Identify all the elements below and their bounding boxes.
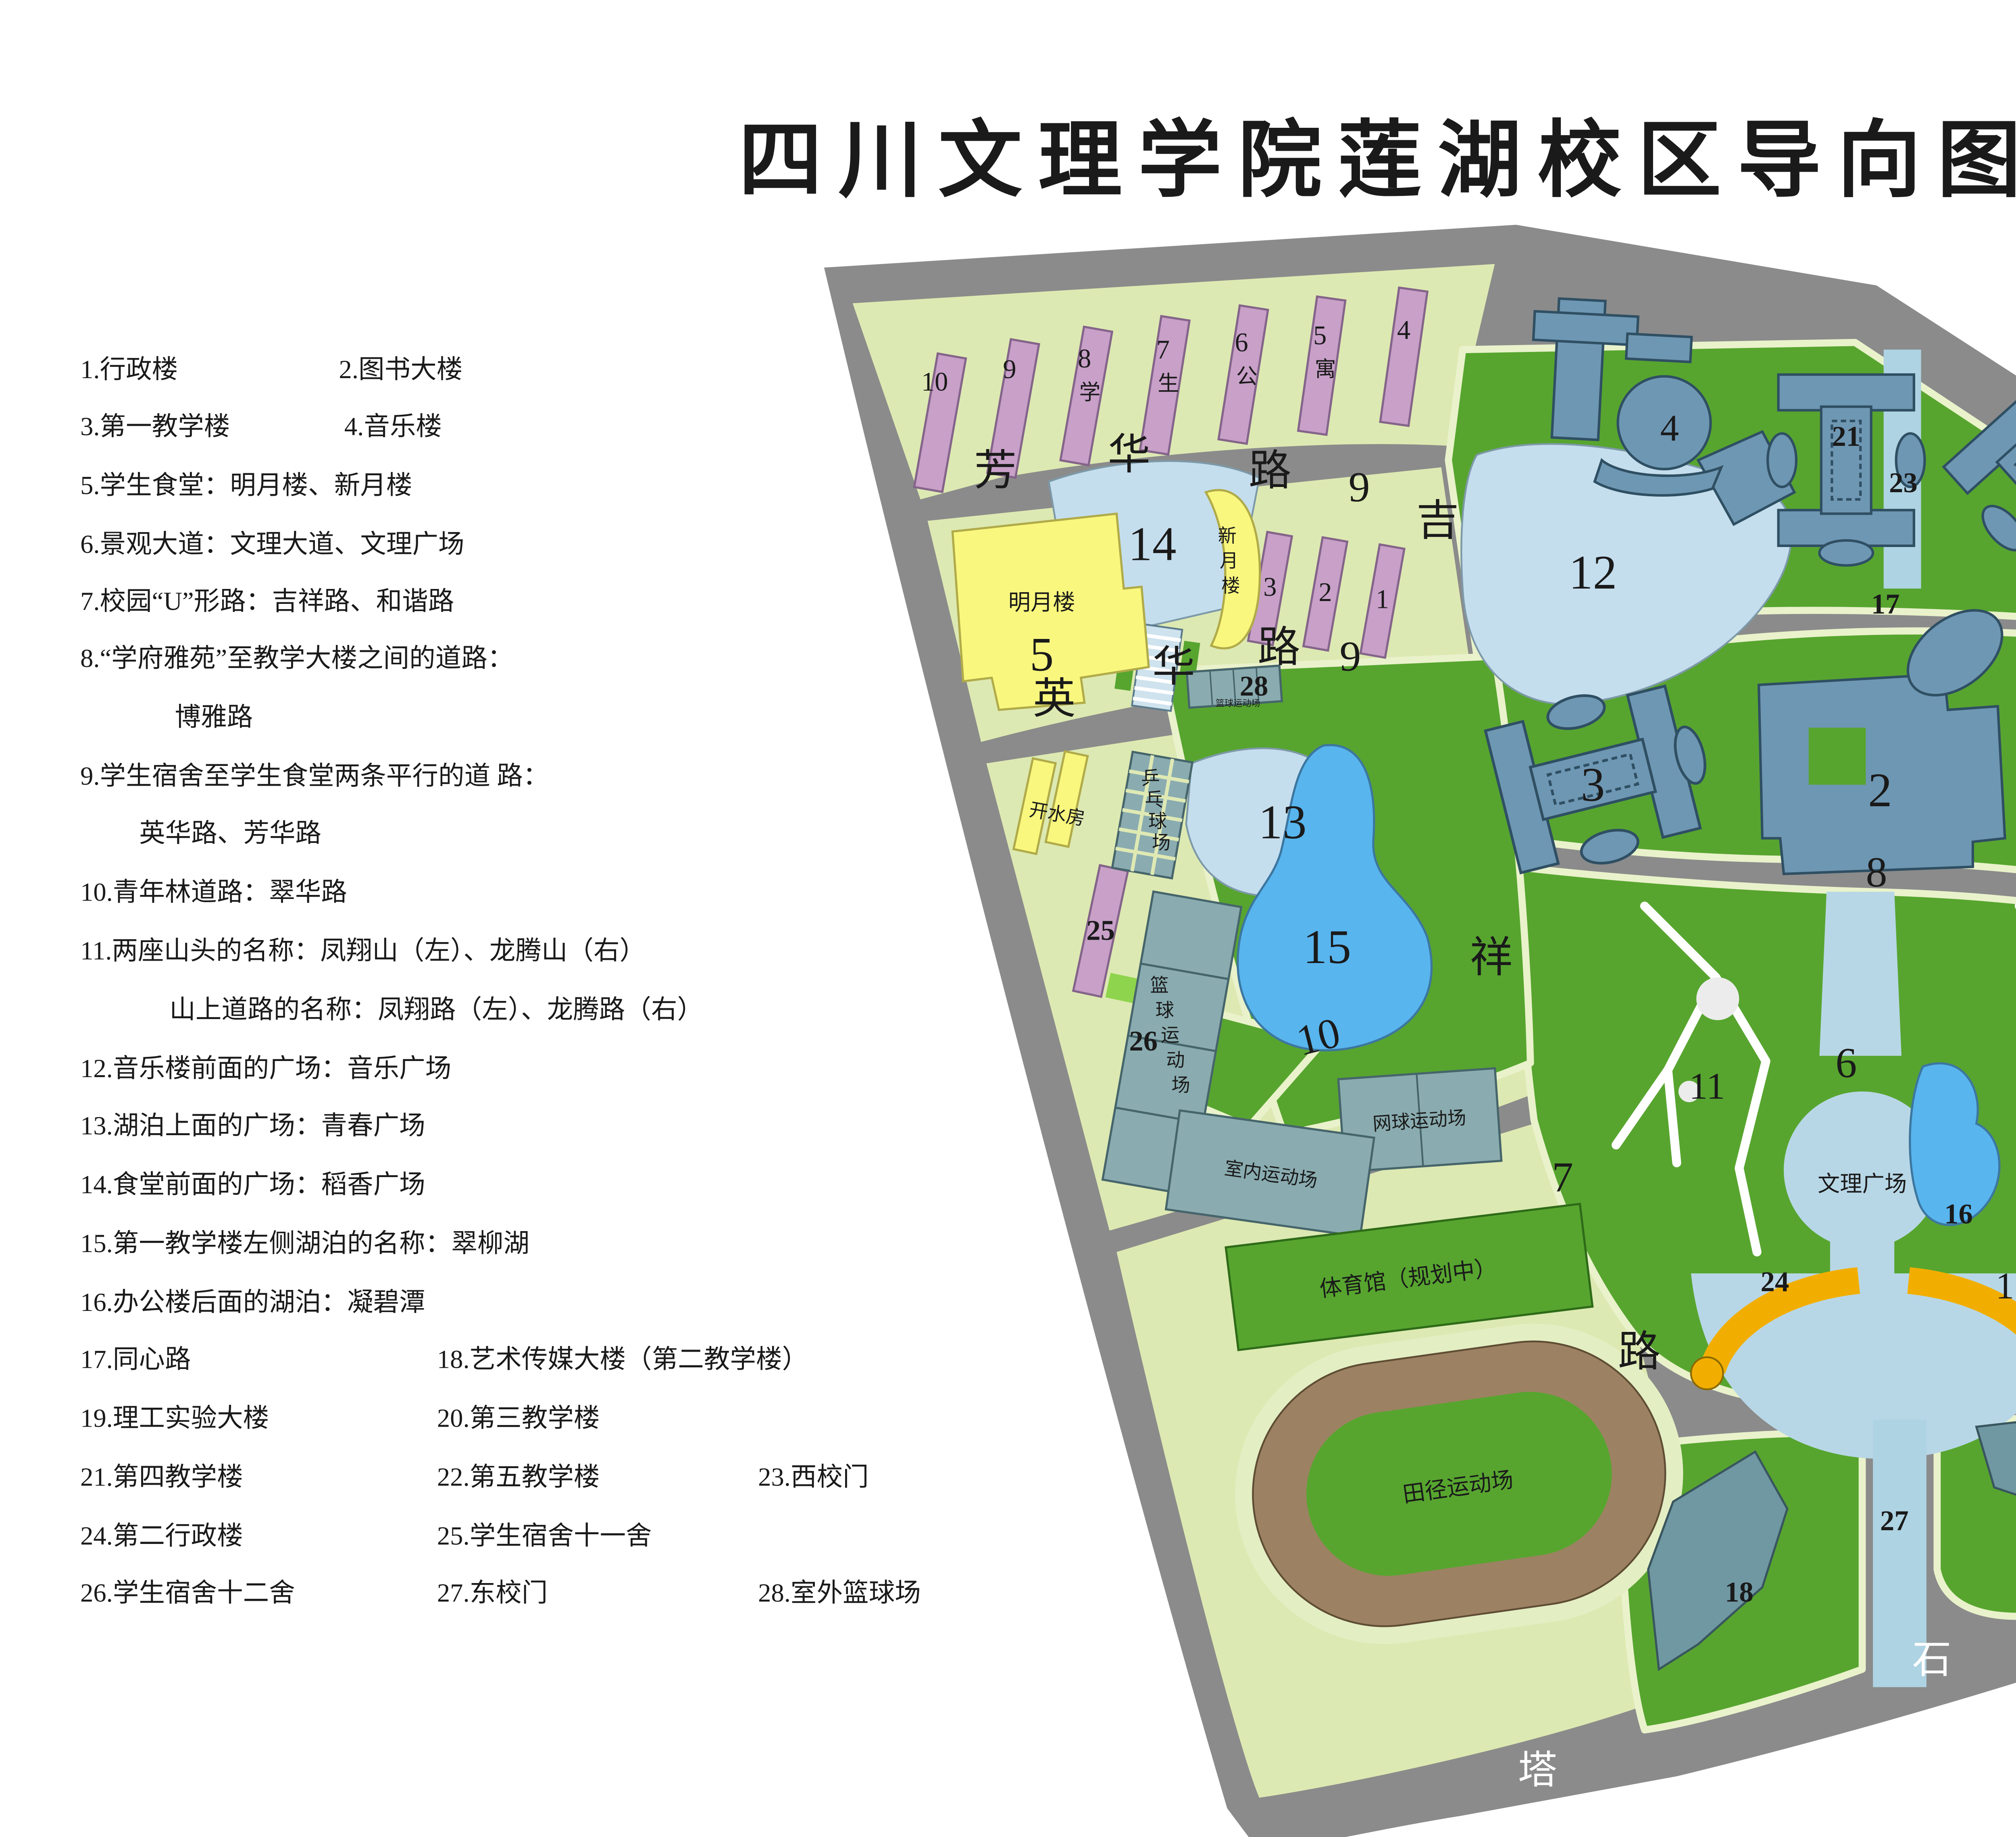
campus-map: 四川文理学院莲湖校区导向图 1.行政楼 2.图书大楼 3.第一教学楼 4.音乐楼…	[0, 0, 2016, 1837]
dorm-char-sheng: 生	[1158, 372, 1179, 395]
building-3-number: 3	[1581, 758, 1605, 811]
dorm-3-label: 3	[1263, 572, 1277, 602]
list-item: 24.第二行政楼	[80, 1521, 243, 1550]
list-item: 17.同心路	[80, 1344, 191, 1373]
lq-char-3: 运	[1161, 1026, 1179, 1046]
lq-char-5: 场	[1171, 1076, 1190, 1096]
plaza-13-number: 13	[1258, 795, 1306, 849]
list-item: 12.音乐楼前面的广场：音乐广场	[80, 1054, 451, 1083]
admin-1-number: 1	[1995, 1265, 2014, 1307]
library-courtyard	[1809, 728, 1866, 785]
list-item: 8.“学府雅苑”至教学大楼之间的道路：	[80, 644, 513, 673]
road-label-hua2: 华	[1152, 643, 1195, 691]
dorm-char-xue: 学	[1079, 381, 1100, 404]
dorm-26-label: 26	[1129, 1026, 1158, 1057]
lq-char-4: 动	[1166, 1051, 1185, 1071]
plaza-14-number: 14	[1128, 517, 1176, 570]
building-4-number: 4	[1660, 408, 1679, 449]
pond-16-number: 16	[1944, 1198, 1973, 1230]
dorm-5-label: 5	[1313, 321, 1327, 350]
road-label-lu: 路	[1249, 447, 1291, 494]
list-item: 博雅路	[175, 703, 253, 732]
list-item: 20.第三教学楼	[437, 1403, 600, 1432]
xinyue-char-3: 楼	[1221, 576, 1240, 597]
dorm-10-label: 10	[921, 367, 948, 397]
court-28-label: 28	[1240, 671, 1268, 702]
road-label-9b: 9	[1339, 632, 1361, 680]
list-item: 2.图书大楼	[339, 355, 463, 384]
building-2-number: 2	[1868, 764, 1892, 817]
road-label-xiang: 祥	[1470, 934, 1512, 981]
court-28-sub: 篮球运动场	[1216, 698, 1260, 708]
list-item: 11.两座山头的名称：凤翔山（左）、龙腾山（右）	[80, 936, 646, 965]
list-item: 27.东校门	[437, 1578, 548, 1607]
pp-char-1: 乒	[1141, 769, 1160, 789]
road-label-fang: 芳	[974, 447, 1016, 494]
pp-char-2: 乓	[1145, 790, 1163, 811]
list-item: 26.学生宿舍十二舍	[80, 1578, 295, 1607]
xinyue-char-2: 月	[1220, 551, 1238, 572]
avenue-label-6: 6	[1835, 1039, 1857, 1086]
dorm-char-gong: 公	[1236, 365, 1258, 388]
mingyue-label: 明月楼	[1008, 590, 1075, 615]
list-item: 28.室外篮球场	[758, 1578, 921, 1607]
road-label-7: 7	[1552, 1153, 1573, 1200]
list-item: 7.校园“U”形路：吉祥路、和谐路	[80, 587, 454, 616]
road-label-ying: 英	[1033, 675, 1075, 723]
road-label-lu2: 路	[1258, 623, 1300, 671]
hill-11-left-label: 11	[1689, 1065, 1725, 1107]
gate-27-number: 27	[1880, 1505, 1909, 1537]
list-item: 25.学生宿舍十一舍	[437, 1521, 652, 1550]
road-label-shi: 石	[1912, 1638, 1951, 1682]
wenli-square-label: 文理广场	[1818, 1171, 1907, 1196]
dorm-6-label: 6	[1235, 328, 1248, 358]
dorm-4-label: 4	[1397, 316, 1410, 345]
building-5-number: 5	[1030, 628, 1054, 681]
list-item: 16.办公楼后面的湖泊：凝碧潭	[80, 1288, 425, 1317]
xinyue-char-1: 新	[1218, 526, 1236, 547]
gate-23-number: 23	[1889, 467, 1918, 499]
list-item: 23.西校门	[758, 1462, 868, 1491]
lake-15-number: 15	[1303, 920, 1351, 974]
plaza-12-number: 12	[1569, 546, 1617, 599]
road-label-lu3: 路	[1618, 1328, 1661, 1375]
road-label-hua: 华	[1108, 431, 1150, 478]
list-item: 9.学生宿舍至学生食堂两条平行的道 路：	[80, 761, 549, 791]
music-mid	[1626, 334, 1691, 362]
list-item: 18.艺术传媒大楼（第二教学楼）	[437, 1344, 808, 1373]
list-item: 山上道路的名称：凤翔路（左）、龙腾路（右）	[169, 995, 703, 1024]
lq-char-1: 篮	[1150, 976, 1168, 996]
road-label-8: 8	[1866, 848, 1887, 896]
list-item: 22.第五教学楼	[437, 1462, 600, 1491]
road-label-9: 9	[1349, 463, 1370, 510]
key-list: 1.行政楼 2.图书大楼 3.第一教学楼 4.音乐楼 5.学生食堂：明月楼、新月…	[80, 355, 921, 1607]
list-item: 4.音乐楼	[344, 412, 442, 441]
music-top	[1533, 311, 1638, 345]
list-item: 3.第一教学楼	[80, 412, 230, 441]
list-item: 19.理工实验大楼	[80, 1403, 269, 1432]
list-item: 21.第四教学楼	[80, 1462, 243, 1491]
list-item: 14.食堂前面的广场：稻香广场	[80, 1170, 425, 1199]
dorm-2-label: 2	[1318, 578, 1332, 607]
dorm-char-yu: 寓	[1314, 358, 1336, 381]
dorm-7-label: 7	[1156, 335, 1170, 364]
list-item: 6.景观大道：文理大道、文理广场	[80, 530, 464, 559]
dorm-25-label: 25	[1086, 915, 1115, 947]
list-item: 15.第一教学楼左侧湖泊的名称：翠柳湖	[80, 1229, 529, 1258]
wenli-avenue-6	[1819, 892, 1901, 1056]
pp-char-3: 球	[1148, 811, 1167, 832]
admin-24-number: 24	[1760, 1266, 1789, 1298]
building-18-number: 18	[1725, 1577, 1754, 1608]
hill-node-left	[1696, 977, 1739, 1020]
dorm-1-label: 1	[1376, 585, 1389, 614]
dorm-9-label: 9	[1003, 355, 1016, 384]
road-label-ji: 吉	[1416, 497, 1459, 544]
dorm-8-label: 8	[1078, 344, 1091, 374]
pp-char-4: 场	[1152, 833, 1170, 853]
list-item: 10.青年林道路：翠华路	[80, 877, 347, 906]
admin-24-cap	[1691, 1357, 1723, 1390]
road-label-17: 17	[1871, 589, 1900, 620]
building-21-number: 21	[1832, 421, 1860, 452]
list-item: 5.学生食堂：明月楼、新月楼	[80, 471, 412, 500]
list-item: 13.湖泊上面的广场：青春广场	[80, 1111, 425, 1140]
page-title: 四川文理学院莲湖校区导向图	[739, 114, 2016, 207]
list-item: 英华路、芳华路	[139, 818, 321, 847]
lq-char-2: 球	[1156, 1001, 1174, 1021]
list-item: 1.行政楼	[80, 355, 178, 384]
road-label-ta: 塔	[1518, 1749, 1557, 1792]
